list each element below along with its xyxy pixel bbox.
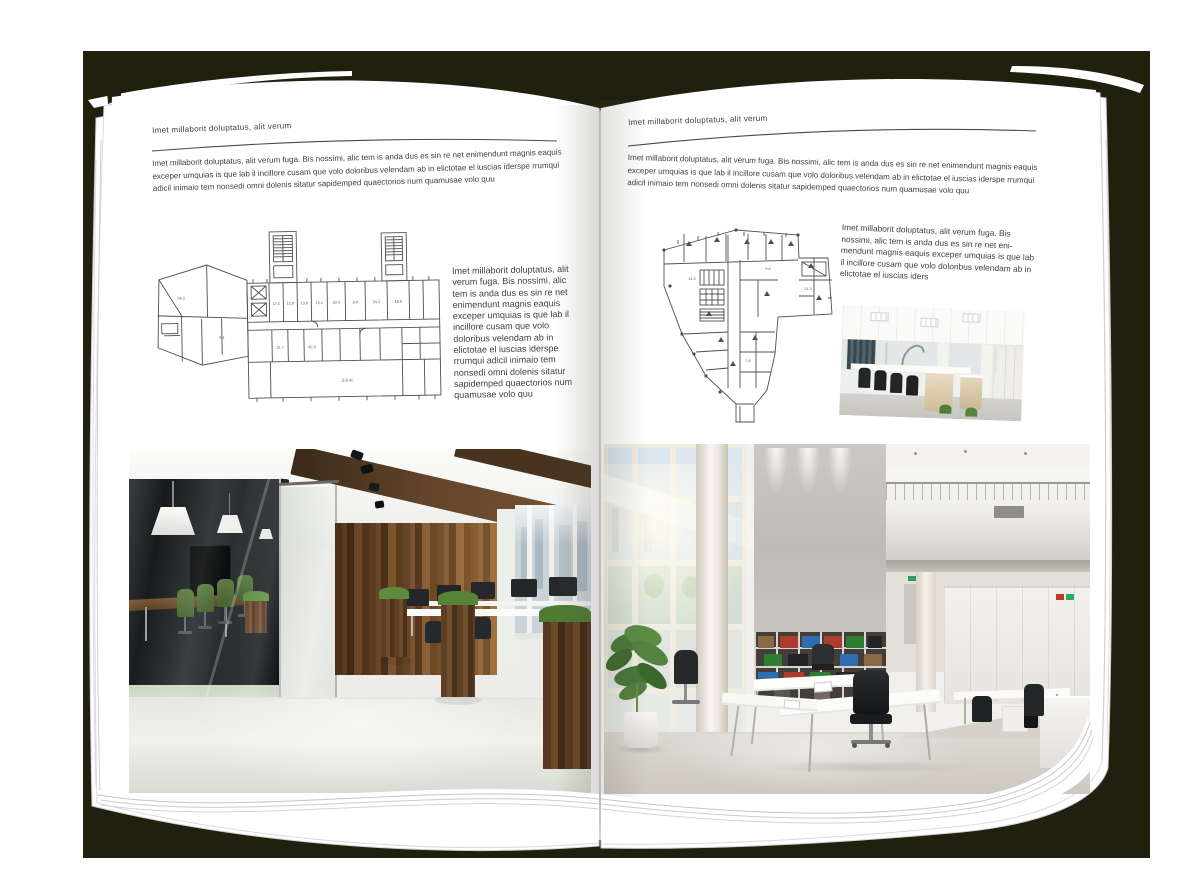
small-plant <box>965 407 977 416</box>
desk-leg <box>964 698 966 724</box>
wood-planter <box>381 595 407 657</box>
room-number: 14.2 <box>688 277 695 281</box>
room-number: 12.8 <box>287 301 294 305</box>
binders <box>780 636 798 648</box>
room-number: 31.7 <box>276 346 283 350</box>
chair-stem <box>869 724 873 740</box>
binders <box>840 654 858 666</box>
room-number: 17.2 <box>273 302 280 306</box>
office-chair <box>473 617 491 639</box>
right-office-photo <box>604 444 1090 794</box>
ceiling-spot <box>1024 452 1027 455</box>
cabinet-seams <box>944 586 1090 702</box>
ceiling-light <box>962 313 980 323</box>
planter-shadow <box>379 657 413 665</box>
left-floor-plan: 17.2 12.8 13.6 15.1 20.4 8.4 24.3 18.9 3… <box>150 223 445 411</box>
office-chair <box>890 373 903 393</box>
glass-partition <box>281 487 337 719</box>
monitor <box>549 577 577 596</box>
wall-spotlight <box>828 448 852 494</box>
binders <box>758 636 774 648</box>
monitor <box>511 579 537 597</box>
chair-wheel <box>852 743 857 748</box>
wardrobe-wall <box>996 346 1024 405</box>
upper-ceiling <box>886 444 1090 470</box>
room-number: 21.3 <box>804 287 811 291</box>
track-spotlight <box>368 482 379 492</box>
planter-grass <box>438 591 478 605</box>
office-chair-back <box>674 650 698 684</box>
room-number: 9.6 <box>765 267 770 271</box>
track-spotlight <box>375 500 385 508</box>
chair-stem <box>684 684 687 700</box>
office-chair <box>1024 684 1044 716</box>
ceiling-spot <box>914 452 917 455</box>
wall-spotlight <box>796 448 820 494</box>
room-number: 56.2 <box>178 296 185 300</box>
magazine-mockup-canvas: Imet millaborit doluptatus, alit verum I… <box>0 0 1200 891</box>
room-number: 24.3 <box>373 300 380 304</box>
glass-railing <box>886 484 1090 500</box>
ceiling-spot <box>964 450 967 453</box>
binders <box>764 654 782 666</box>
desk-leg <box>411 616 413 636</box>
room-number: 9.1 <box>219 336 224 340</box>
air-vent <box>994 506 1024 518</box>
table-shadow <box>754 760 974 774</box>
office-chair-back <box>812 644 834 664</box>
right-floor-plan: 14.2 9.6 21.3 7.8 <box>648 220 838 425</box>
office-chair-seat <box>850 714 892 724</box>
left-page-side-text: Imet millaborit doluptatus, alit verum f… <box>452 264 584 402</box>
chair-base <box>672 700 700 704</box>
office-chair <box>874 370 887 390</box>
first-aid-sign <box>1056 594 1064 600</box>
wood-cabinet <box>959 375 982 410</box>
office-chair-back <box>853 670 889 714</box>
left-office-photo <box>129 449 591 793</box>
binders <box>788 654 808 666</box>
room-number: 8.4 <box>353 300 358 304</box>
room-number: 13.6 <box>301 301 308 305</box>
planter-grass <box>539 605 591 622</box>
wall-spotlight <box>764 448 788 494</box>
room-number: 42.6 <box>308 345 315 349</box>
binders <box>864 654 882 666</box>
chair-wheel <box>885 743 890 748</box>
wood-planter <box>543 619 591 769</box>
office-chair-seat <box>812 664 834 670</box>
office-chair <box>972 696 992 722</box>
floor-plan-label: 2-й эт. <box>342 377 354 382</box>
planter-grass <box>379 587 409 599</box>
plant-pot <box>624 712 658 748</box>
white-pillar <box>980 344 996 404</box>
right-page-side-text: Imet millaborit doluptatus, alit verum f… <box>840 222 1040 287</box>
room-number: 7.8 <box>745 359 750 363</box>
room-number: 18.9 <box>395 300 402 304</box>
paper-sheet <box>814 681 833 693</box>
binders <box>846 636 864 648</box>
binders <box>868 636 882 648</box>
office-chair <box>858 368 871 388</box>
room-number: 15.1 <box>316 301 323 305</box>
paper-sheet <box>784 699 801 710</box>
small-office-photo <box>839 305 1025 421</box>
small-plant <box>939 404 951 413</box>
floor-highlight <box>189 699 529 793</box>
white-pedestal <box>1040 696 1090 768</box>
wood-planter <box>441 601 475 697</box>
ceiling-light <box>920 318 938 328</box>
room-number: 20.4 <box>333 301 340 305</box>
office-chair <box>906 375 919 395</box>
ceiling-light <box>870 312 888 322</box>
exit-sign <box>1066 594 1074 600</box>
window-glare <box>515 505 591 545</box>
plant-stem <box>636 684 638 714</box>
